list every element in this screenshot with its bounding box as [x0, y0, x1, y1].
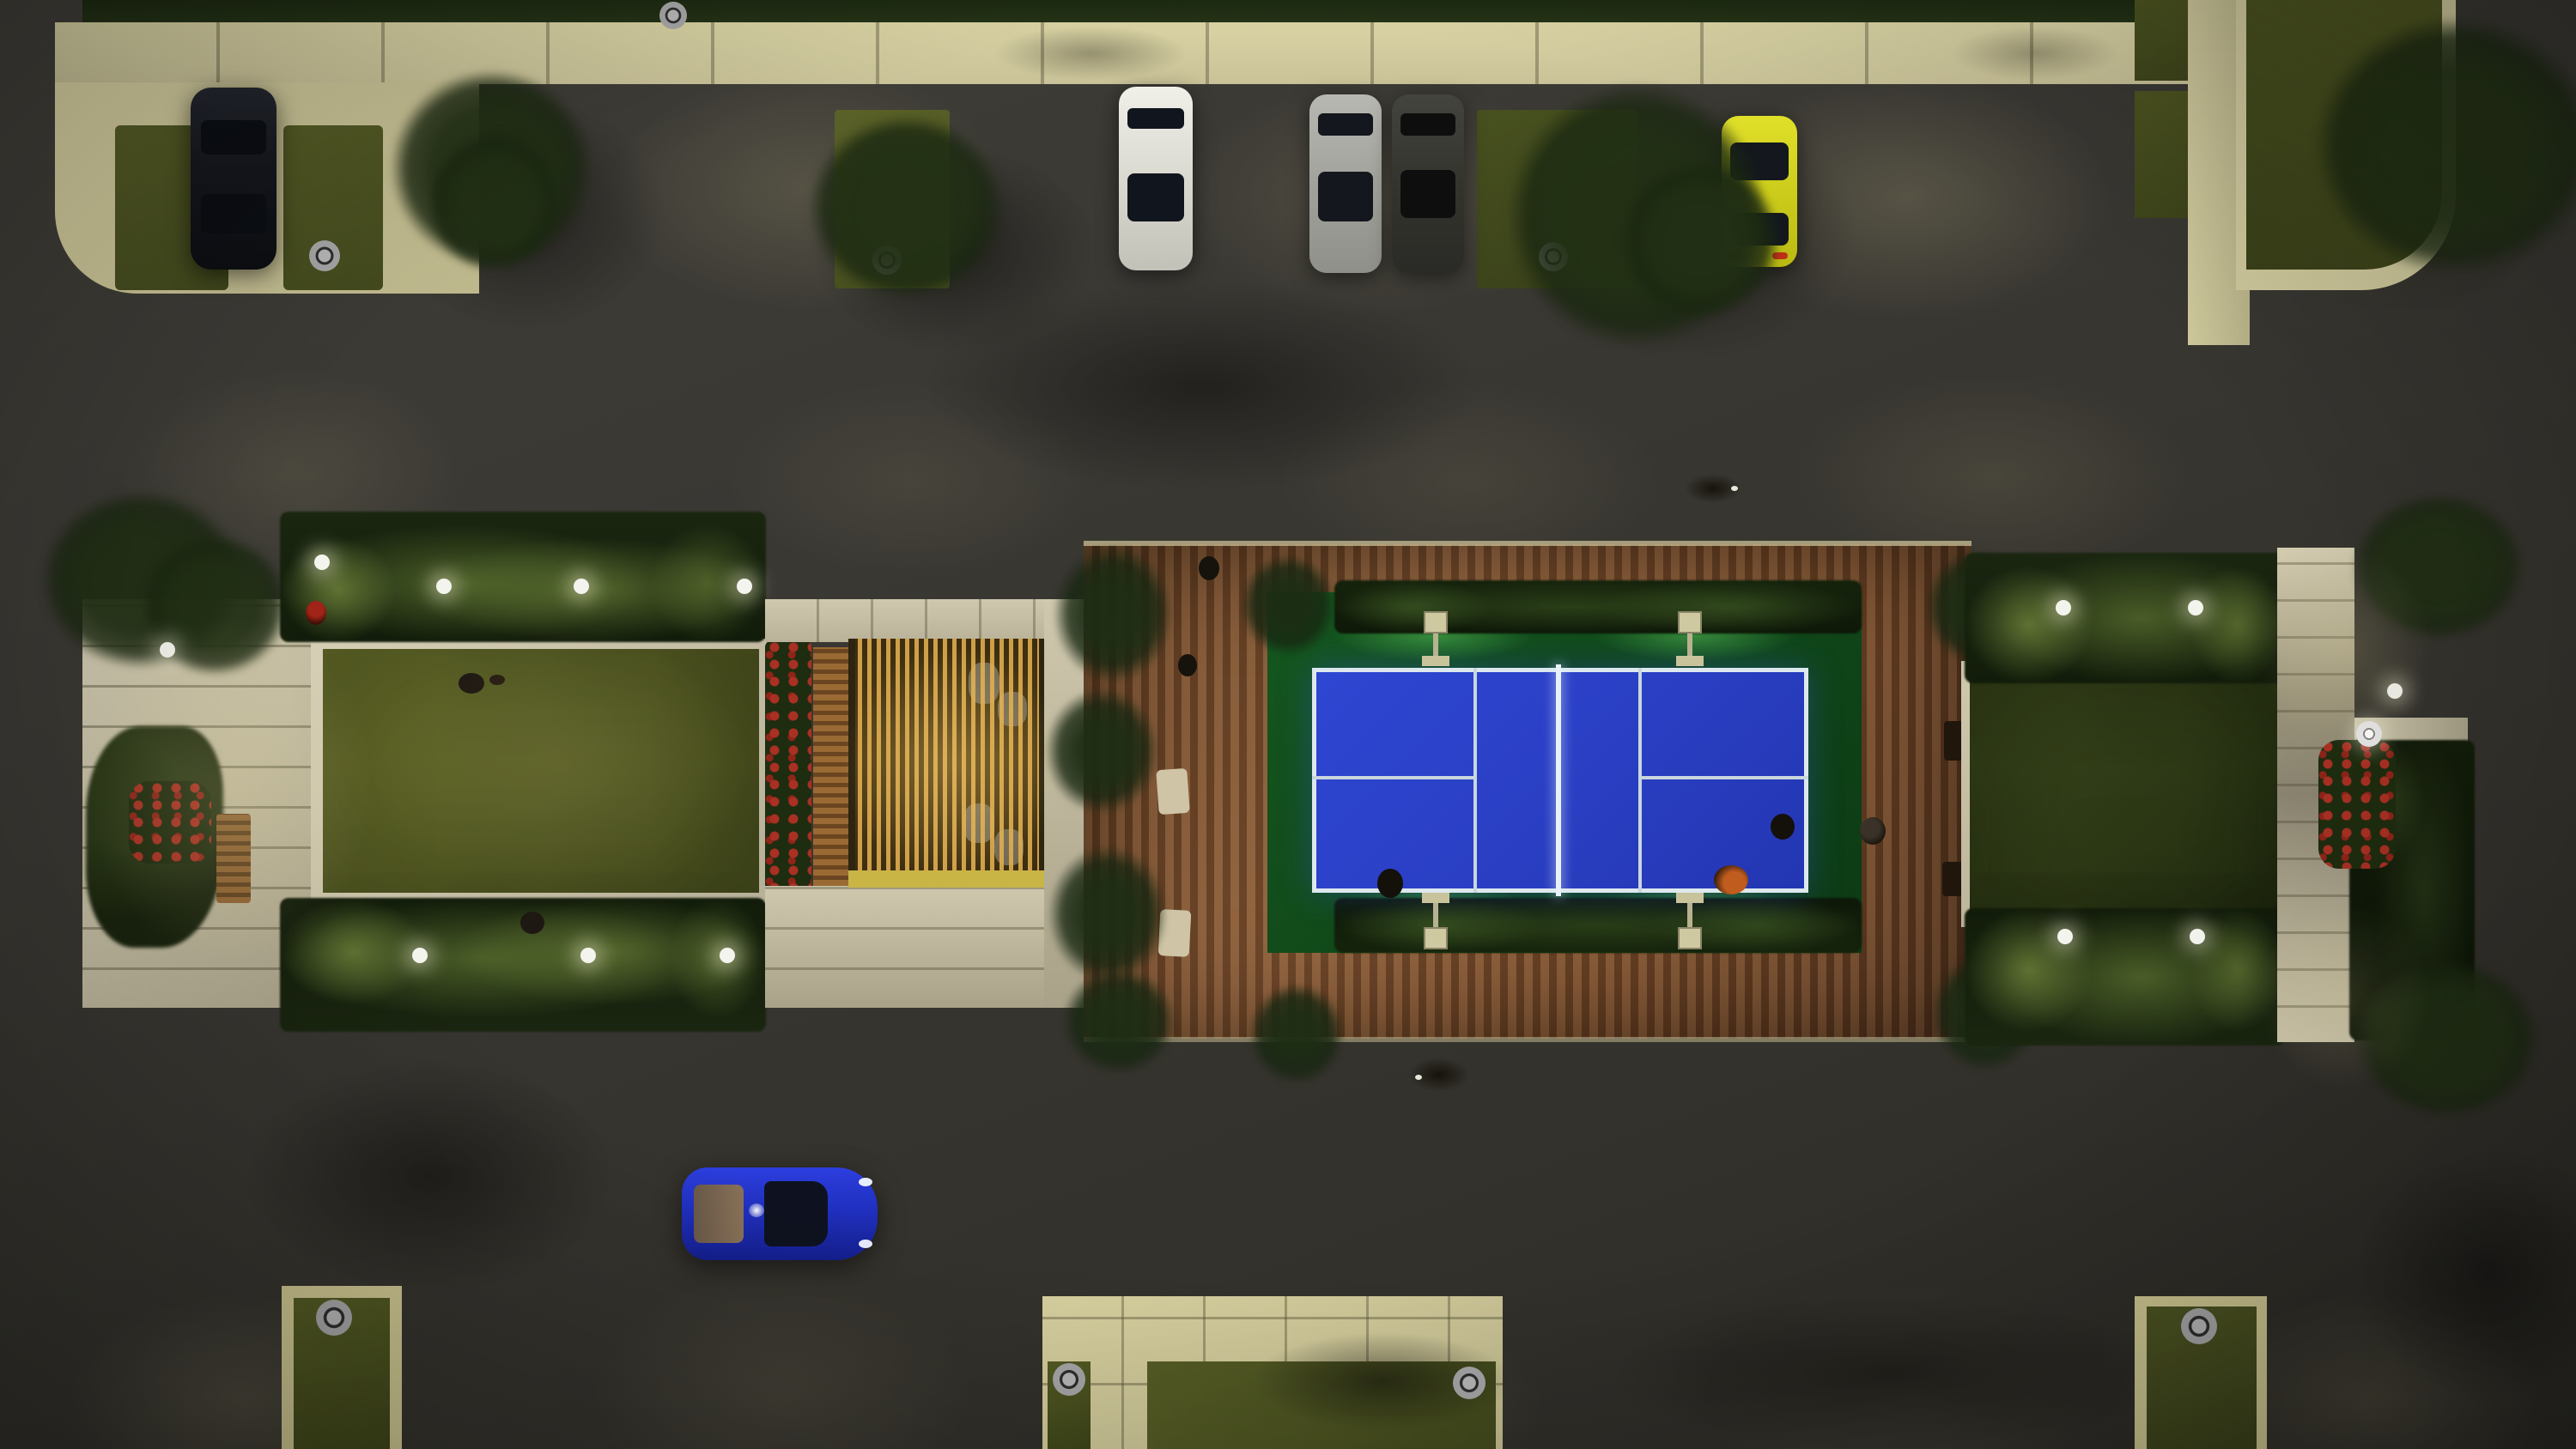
scene-vignette	[0, 0, 2576, 1449]
scene	[0, 0, 2576, 1449]
render-viewport	[0, 0, 2576, 1449]
